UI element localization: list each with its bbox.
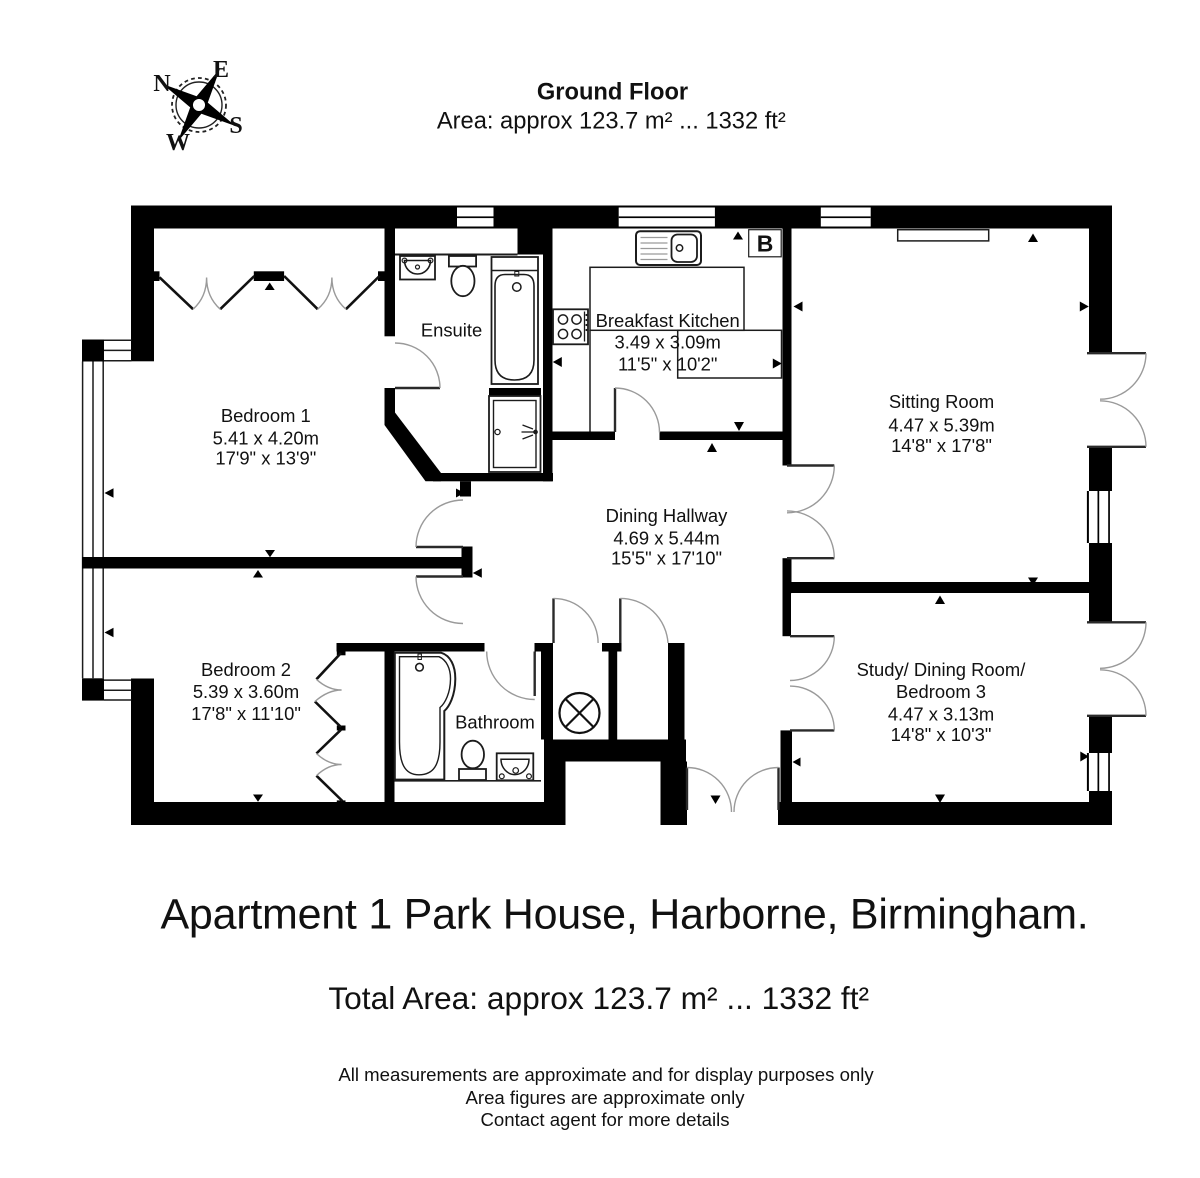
svg-text:Dining Hallway: Dining Hallway	[606, 505, 728, 526]
svg-text:All measurements are approxima: All measurements are approximate and for…	[338, 1064, 874, 1085]
svg-text:14'8" x 10'3": 14'8" x 10'3"	[891, 724, 992, 745]
svg-text:17'8" x 11'10": 17'8" x 11'10"	[191, 703, 301, 724]
svg-text:W: W	[166, 130, 190, 156]
svg-text:11'5" x 10'2": 11'5" x 10'2"	[618, 354, 718, 375]
svg-text:Area: approx 123.7 m² ... 1332: Area: approx 123.7 m² ... 1332 ft²	[437, 109, 786, 135]
svg-text:Area figures are approximate o: Area figures are approximate only	[465, 1087, 745, 1108]
svg-text:N: N	[153, 71, 171, 97]
svg-text:Bathroom: Bathroom	[455, 711, 535, 732]
svg-text:3.49 x 3.09m: 3.49 x 3.09m	[615, 332, 721, 353]
svg-text:S: S	[229, 113, 242, 139]
svg-text:5.41 x 4.20m: 5.41 x 4.20m	[213, 428, 319, 449]
svg-text:Ensuite: Ensuite	[421, 320, 482, 341]
svg-text:Bedroom 2: Bedroom 2	[201, 659, 291, 680]
svg-text:4.69 x 5.44m: 4.69 x 5.44m	[613, 528, 719, 549]
svg-text:Total Area: approx 123.7 m² ..: Total Area: approx 123.7 m² ... 1332 ft²	[328, 980, 869, 1016]
svg-text:15'5" x 17'10": 15'5" x 17'10"	[611, 547, 722, 568]
svg-text:Breakfast Kitchen: Breakfast Kitchen	[596, 310, 740, 331]
svg-text:B: B	[757, 231, 774, 257]
svg-text:14'8" x 17'8": 14'8" x 17'8"	[891, 435, 992, 456]
svg-text:Apartment 1 Park House, Harbor: Apartment 1 Park House, Harborne, Birmin…	[161, 891, 1089, 939]
svg-text:5.39 x 3.60m: 5.39 x 3.60m	[193, 681, 299, 702]
svg-text:Sitting Room: Sitting Room	[889, 391, 994, 412]
svg-text:4.47 x 5.39m: 4.47 x 5.39m	[888, 414, 994, 435]
svg-text:Study/ Dining Room/: Study/ Dining Room/	[857, 659, 1027, 680]
svg-text:Bedroom 3: Bedroom 3	[896, 681, 986, 702]
svg-text:Bedroom 1: Bedroom 1	[221, 405, 311, 426]
svg-text:E: E	[213, 57, 229, 83]
svg-text:17'9" x 13'9": 17'9" x 13'9"	[215, 447, 316, 468]
svg-text:Contact agent for more details: Contact agent for more details	[480, 1109, 729, 1130]
svg-text:4.47 x 3.13m: 4.47 x 3.13m	[888, 703, 994, 724]
svg-text:Ground Floor: Ground Floor	[537, 79, 688, 105]
